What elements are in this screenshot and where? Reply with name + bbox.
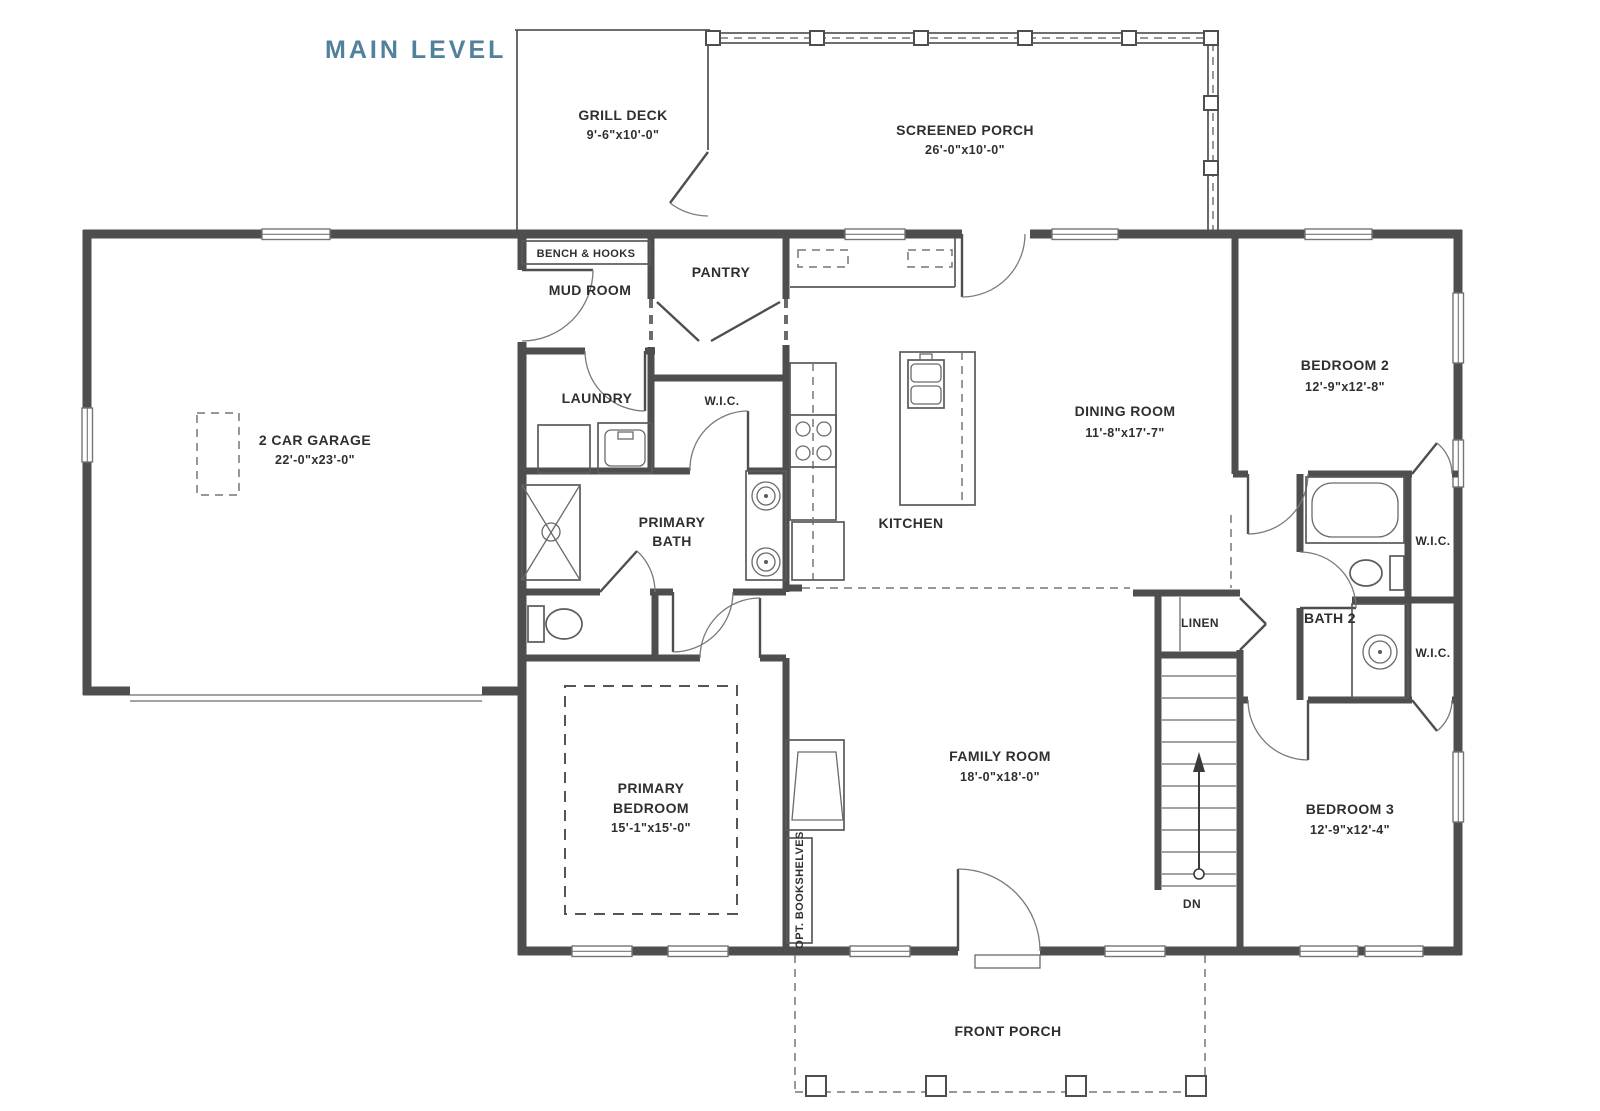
label-dining: DINING ROOM xyxy=(1075,403,1176,419)
label-bedroom2: BEDROOM 2 xyxy=(1301,357,1389,373)
label-wic-bed2: W.I.C. xyxy=(1415,534,1450,548)
deck-door xyxy=(670,152,708,216)
fireplace xyxy=(786,740,844,830)
floor-plan-page: MAIN LEVEL GRILL DECK 9'-6"x10'-0" SCREE… xyxy=(0,0,1600,1111)
label-primary-bath-1: PRIMARY xyxy=(639,514,706,530)
label-wic-primary: W.I.C. xyxy=(704,394,739,408)
label-mud-room: MUD ROOM xyxy=(549,282,632,298)
dims-screened-porch: 26'-0"x10'-0" xyxy=(925,143,1005,157)
label-laundry: LAUNDRY xyxy=(562,390,633,406)
label-front-porch: FRONT PORCH xyxy=(954,1023,1061,1039)
label-linen: LINEN xyxy=(1181,616,1219,630)
label-family-room: FAMILY ROOM xyxy=(949,748,1051,764)
label-stairs-dn: DN xyxy=(1183,897,1201,911)
label-primary-bedroom-1: PRIMARY xyxy=(618,780,685,796)
laundry-appliances xyxy=(538,423,652,473)
label-primary-bedroom-2: BEDROOM xyxy=(613,800,689,816)
label-pantry: PANTRY xyxy=(692,264,751,280)
stairs xyxy=(1162,676,1236,886)
dims-grill-deck: 9'-6"x10'-0" xyxy=(587,128,660,142)
label-grill-deck: GRILL DECK xyxy=(578,107,667,123)
floor-plan-canvas: MAIN LEVEL GRILL DECK 9'-6"x10'-0" SCREE… xyxy=(0,0,1600,1111)
dims-primary-bedroom: 15'-1"x15'-0" xyxy=(611,821,691,835)
front-stoop xyxy=(975,955,1040,968)
label-bath2: BATH 2 xyxy=(1304,610,1356,626)
dims-garage: 22'-0"x23'-0" xyxy=(275,453,355,467)
label-primary-bath-2: BATH xyxy=(652,533,691,549)
stairs-direction-arrow xyxy=(1193,752,1205,879)
bath2-fixtures xyxy=(1306,477,1408,698)
page-title: MAIN LEVEL xyxy=(325,36,506,64)
label-opt-bookshelves: OPT. BOOKSHELVES xyxy=(794,831,806,948)
dims-bedroom2: 12'-9"x12'-8" xyxy=(1305,380,1385,394)
dims-bedroom3: 12'-9"x12'-4" xyxy=(1310,823,1390,837)
label-screened-porch: SCREENED PORCH xyxy=(896,122,1034,138)
garage-door xyxy=(130,695,482,701)
garage-utility-pad xyxy=(197,413,239,495)
interior-walls xyxy=(518,234,1458,955)
label-garage: 2 CAR GARAGE xyxy=(259,432,371,448)
label-kitchen: KITCHEN xyxy=(878,515,943,531)
label-wic-bed3: W.I.C. xyxy=(1415,646,1450,660)
dims-dining: 11'-8"x17'-7" xyxy=(1085,426,1164,440)
label-bedroom3: BEDROOM 3 xyxy=(1306,801,1394,817)
label-bench-hooks: BENCH & HOOKS xyxy=(537,248,636,260)
dims-family-room: 18'-0"x18'-0" xyxy=(960,770,1040,784)
